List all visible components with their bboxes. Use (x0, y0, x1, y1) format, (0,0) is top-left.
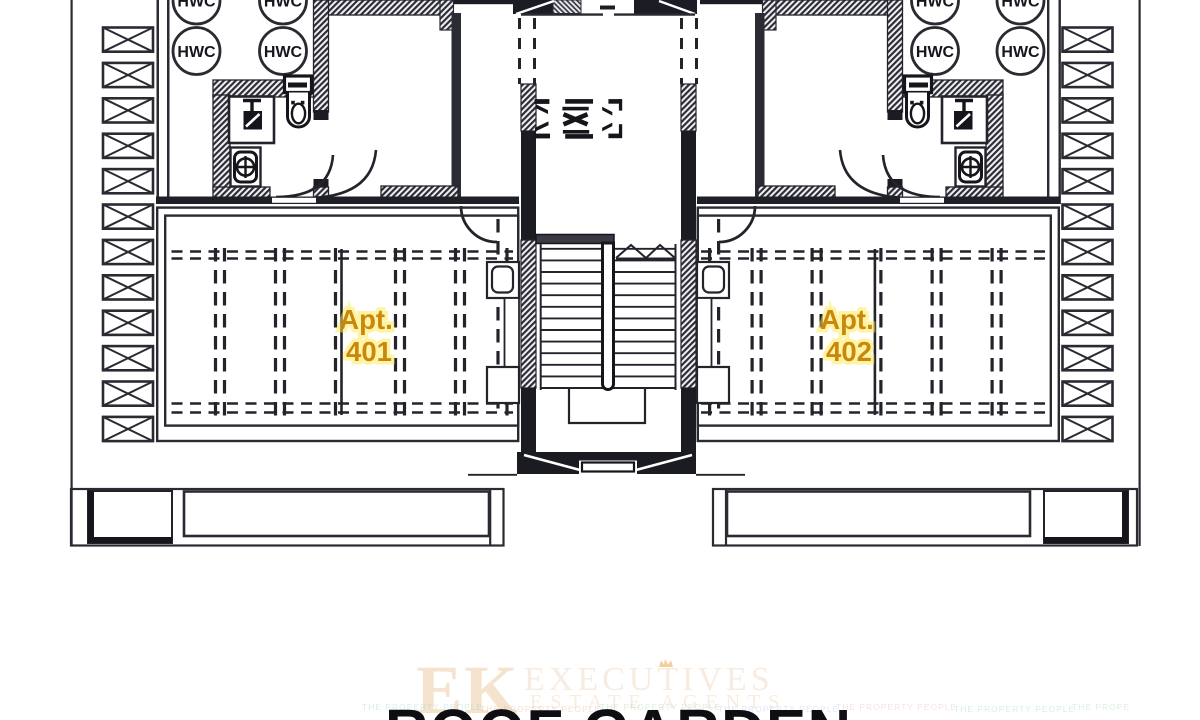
svg-text:THE PROPERTY PEOPLE: THE PROPERTY PEOPLE (954, 704, 1075, 714)
svg-text:401: 401 (346, 336, 392, 367)
svg-text:HWC: HWC (264, 44, 303, 61)
svg-text:HWC: HWC (264, 0, 303, 11)
svg-text:HWC: HWC (916, 0, 955, 11)
svg-text:THE PROPE: THE PROPE (1072, 702, 1130, 712)
svg-text:Apt.: Apt. (339, 304, 392, 335)
svg-text:Apt.: Apt. (820, 304, 873, 335)
svg-text:HWC: HWC (1001, 0, 1040, 11)
svg-text:ROOF GARDEN: ROOF GARDEN (385, 698, 853, 720)
svg-text:THE PROPERTY PEOPLE: THE PROPERTY PEOPLE (836, 702, 957, 712)
svg-text:HWC: HWC (177, 44, 216, 61)
svg-text:402: 402 (826, 336, 872, 367)
svg-text:HWC: HWC (916, 44, 955, 61)
svg-text:HWC: HWC (177, 0, 216, 11)
svg-text:HWC: HWC (1001, 44, 1040, 61)
